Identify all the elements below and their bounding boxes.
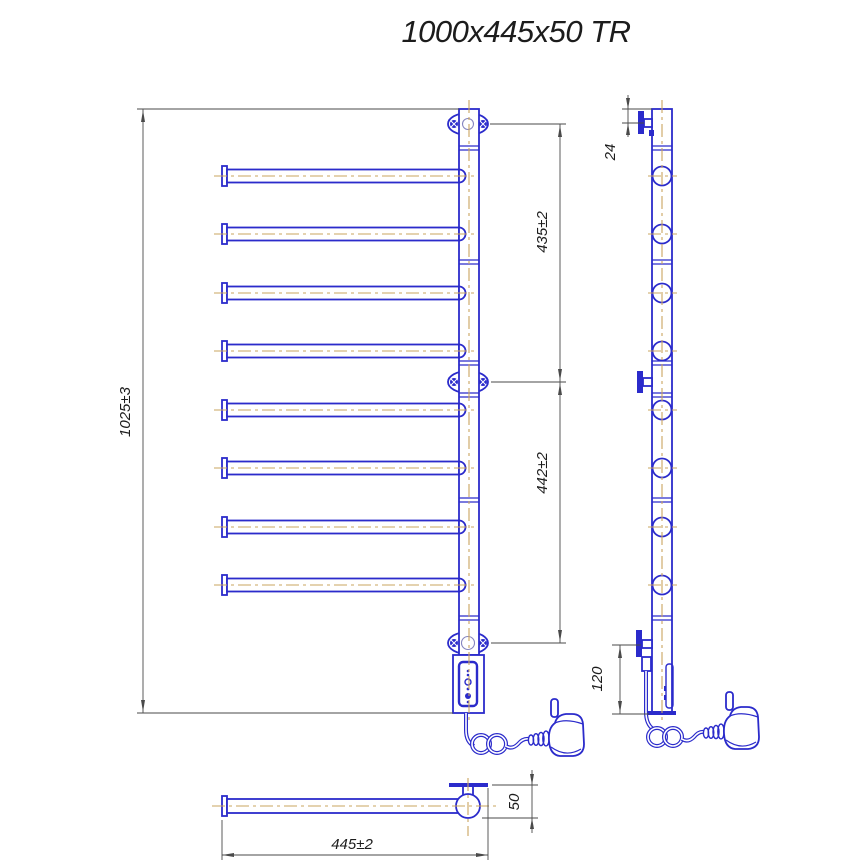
technical-drawing: 1000x445x50 TR [0,0,868,868]
power-plug-side [724,692,759,749]
front-view [222,109,584,756]
plug-prong-side [726,692,733,710]
drawing-title: 1000x445x50 TR [401,14,630,49]
wall-bracket-bottom-side [636,630,652,671]
power-plug-front [549,699,584,756]
plug-prong [551,699,558,717]
bracket-hole-bottom [462,637,475,650]
timer-panel [459,662,477,706]
drawing-sheet: 1000x445x50 TR [0,0,868,868]
wall-bracket-middle-side [637,371,652,393]
bracket-hole-top [463,119,474,130]
towel-bars [222,166,466,595]
dim-top-bracket-offset: 24 [602,144,619,162]
side-view [636,109,759,749]
dim-upper-span: 435±2 [534,211,551,253]
dim-depth: 50 [506,793,523,810]
dim-lower-span: 442±2 [534,452,551,494]
bottom-view [222,783,488,818]
dim-bottom-bracket-offset: 120 [589,666,606,692]
dim-overall-height: 1025±3 [117,386,134,437]
strain-relief [528,731,549,746]
cable-gland [642,657,651,671]
dim-overall-width: 445±2 [331,836,373,853]
strain-relief-side [703,724,724,739]
